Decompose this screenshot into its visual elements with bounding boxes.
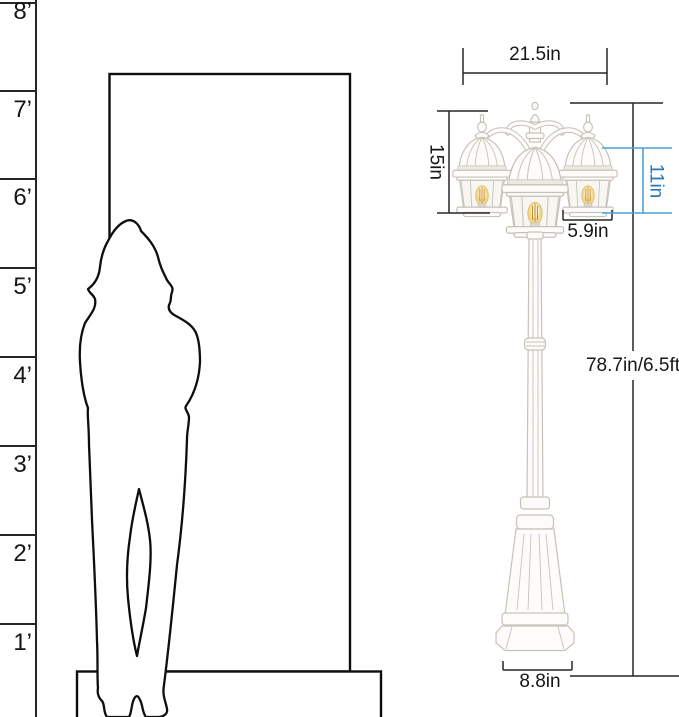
dim-label-head-height: 15in [427, 144, 446, 180]
dim-label-total-height: 78.7in/6.5ft [586, 356, 679, 375]
ruler-label-2ft: 2’ [0, 542, 32, 566]
ruler-label-6ft: 6’ [0, 186, 32, 210]
product-dimension-diagram: 8’ 7’ 6’ 5’ 4’ 3’ 2’ 1’ 21.5in 15in 11in… [0, 0, 679, 717]
lamp-base [505, 529, 565, 615]
ruler-label-5ft: 5’ [0, 275, 32, 299]
dim-label-lantern-width: 5.9in [567, 222, 608, 241]
ruler-label-4ft: 4’ [0, 364, 32, 388]
dim-label-top-width: 21.5in [509, 45, 561, 64]
lamp-post [453, 102, 617, 650]
dim-label-base-width: 8.8in [519, 672, 560, 691]
pole-collar [525, 338, 546, 350]
ruler-label-1ft: 1’ [0, 631, 32, 655]
ruler-label-8ft: 8’ [0, 0, 32, 24]
ruler-label-7ft: 7’ [0, 98, 32, 122]
dim-label-lantern-height: 11in [647, 164, 666, 199]
center-lantern [502, 147, 568, 237]
ruler-label-3ft: 3’ [0, 453, 32, 477]
lamp-pole [527, 236, 543, 500]
lamp-foot [496, 626, 574, 651]
diagram-drawing [0, 0, 679, 717]
